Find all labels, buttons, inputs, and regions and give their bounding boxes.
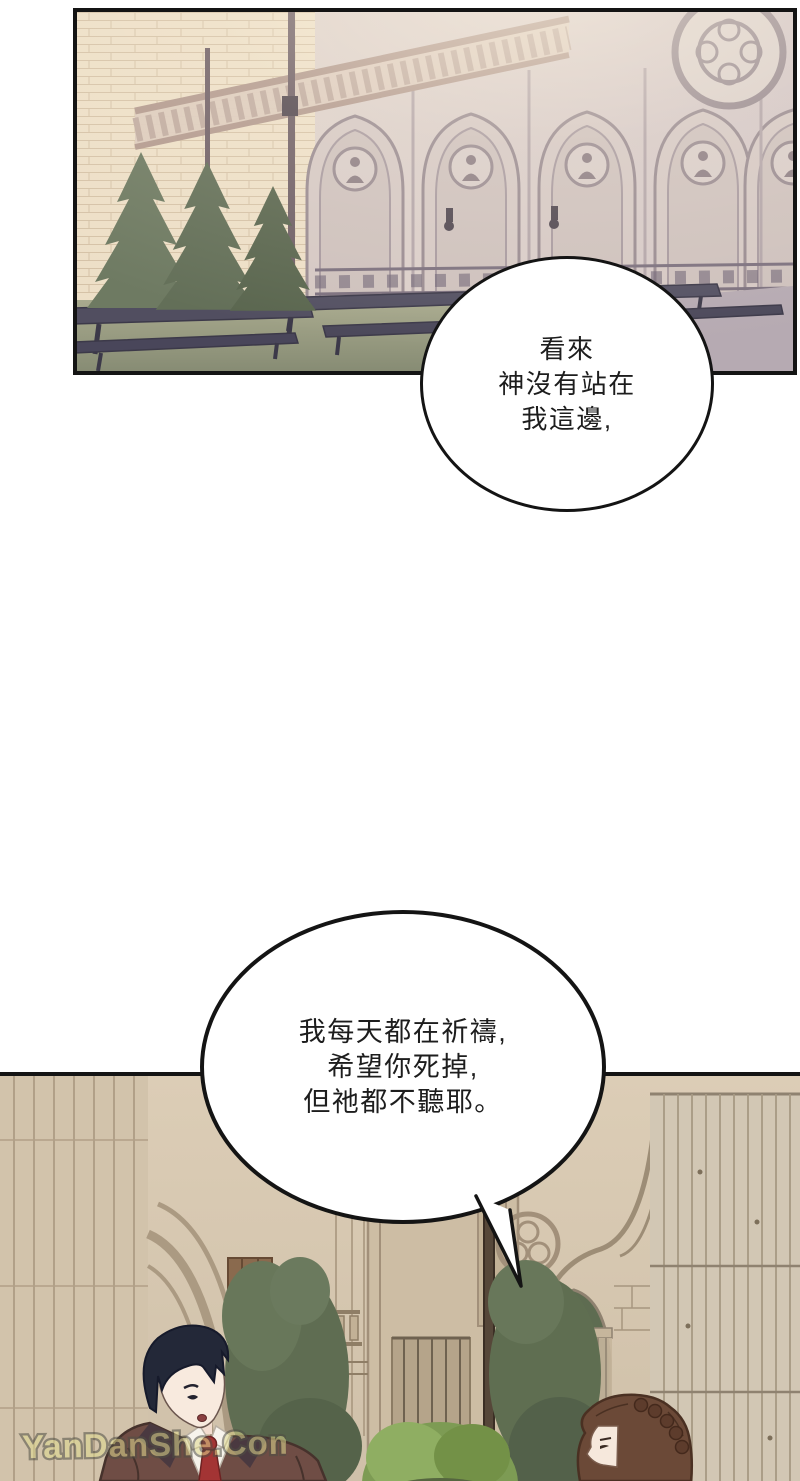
site-watermark: YanDanShe.Com [16, 1415, 287, 1474]
speech-bubble-2-tail [458, 1183, 538, 1293]
bubble-2-line-3: 但祂都不聽耶。 [303, 1085, 503, 1120]
bubble-2-line-2: 希望你死掉, [327, 1050, 479, 1085]
bush-center [362, 1422, 518, 1481]
bubble-1-line-1: 看來 [539, 332, 594, 367]
bubble-1-line-3: 我這邊, [521, 402, 612, 437]
bubble-2-line-1: 我每天都在祈禱, [299, 1015, 508, 1050]
watermark-text: YanDanShe.Com [22, 1423, 287, 1465]
comic-page: 看來 神沒有站在 我這邊, 我每天都在祈禱, 希望你死掉, 但祂都不聽耶。 Ya… [0, 0, 800, 1481]
bubble-1-line-2: 神沒有站在 [498, 367, 636, 402]
speech-bubble-2: 我每天都在祈禱, 希望你死掉, 但祂都不聽耶。 [200, 910, 606, 1224]
speech-bubble-1: 看來 神沒有站在 我這邊, [420, 256, 714, 512]
